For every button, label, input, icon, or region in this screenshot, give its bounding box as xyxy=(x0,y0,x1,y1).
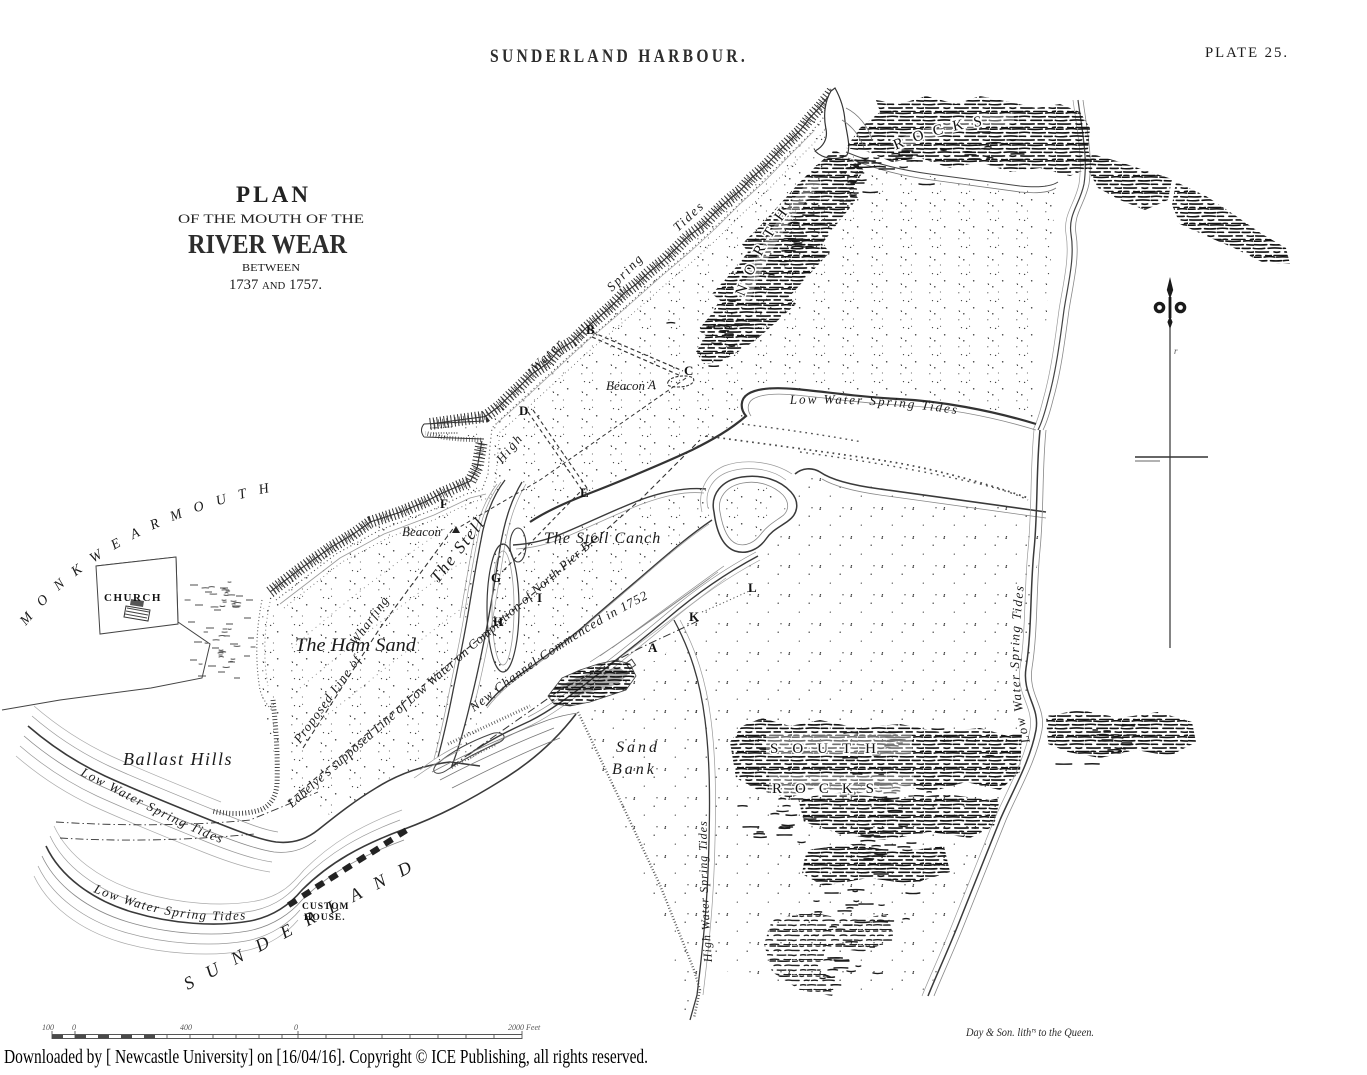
svg-text:SUNDERLAND HARBOUR.: SUNDERLAND HARBOUR. xyxy=(490,46,748,67)
svg-text:G: G xyxy=(491,570,501,585)
svg-text:0: 0 xyxy=(294,1023,298,1032)
svg-text:C: C xyxy=(684,363,693,378)
svg-text:Ballast Hills: Ballast Hills xyxy=(123,749,233,769)
svg-text:I: I xyxy=(537,590,542,605)
svg-text:ROCKS: ROCKS xyxy=(772,781,887,797)
svg-text:Beacon: Beacon xyxy=(402,524,441,539)
svg-text:E: E xyxy=(580,485,589,500)
svg-text:B: B xyxy=(586,322,595,337)
svg-text:Bank: Bank xyxy=(612,761,657,778)
svg-text:A: A xyxy=(648,640,658,655)
svg-text:Sand: Sand xyxy=(616,739,660,756)
svg-text:CHURCH: CHURCH xyxy=(104,592,162,604)
svg-text:H: H xyxy=(493,614,503,629)
svg-text:PLATE 25.: PLATE 25. xyxy=(1205,45,1289,61)
svg-text:SOUTH: SOUTH xyxy=(770,741,890,757)
svg-text:RIVER WEAR: RIVER WEAR xyxy=(188,229,347,259)
svg-text:PLAN: PLAN xyxy=(236,182,313,207)
svg-text:CUSTOM: CUSTOM xyxy=(302,902,350,912)
svg-text:r: r xyxy=(1174,346,1178,356)
svg-text:HOUSE.: HOUSE. xyxy=(304,913,346,923)
svg-text:Beacon: Beacon xyxy=(606,378,645,393)
svg-text:Downloaded by [ Newcastle Univ: Downloaded by [ Newcastle University] on… xyxy=(4,1047,648,1068)
svg-text:400: 400 xyxy=(180,1023,192,1032)
svg-text:L: L xyxy=(748,580,757,595)
svg-text:K: K xyxy=(689,609,700,624)
svg-text:1737 AND 1757.: 1737 AND 1757. xyxy=(229,277,322,293)
svg-text:A: A xyxy=(647,377,656,392)
svg-text:0: 0 xyxy=(72,1023,76,1032)
svg-text:D: D xyxy=(519,403,528,418)
svg-text:Day & Son. lithʳˢ to the Queen: Day & Son. lithʳˢ to the Queen. xyxy=(965,1025,1094,1039)
svg-text:100: 100 xyxy=(42,1023,54,1032)
svg-text:OF THE MOUTH OF THE: OF THE MOUTH OF THE xyxy=(178,212,364,226)
svg-text:F: F xyxy=(440,496,448,511)
svg-text:2000 Feet: 2000 Feet xyxy=(508,1023,541,1032)
svg-text:BETWEEN: BETWEEN xyxy=(242,262,300,274)
